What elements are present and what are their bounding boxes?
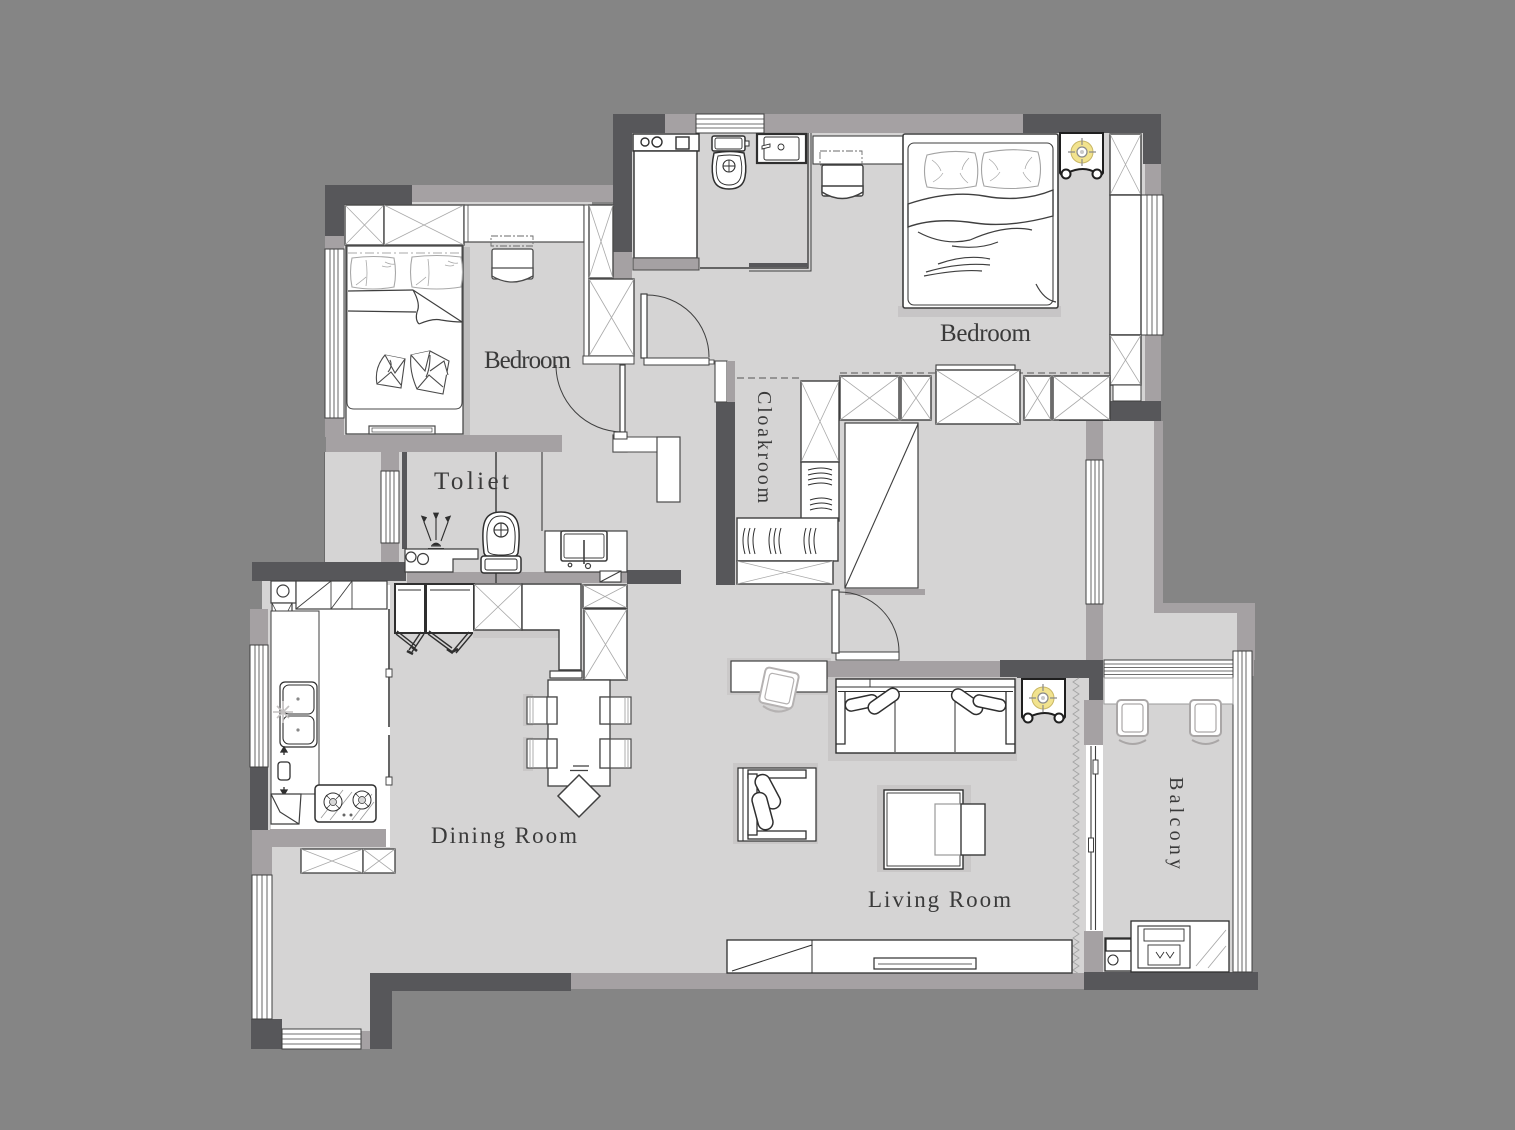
svg-text:Cloakroom: Cloakroom xyxy=(753,391,775,503)
svg-text:Bedroom: Bedroom xyxy=(940,320,1032,347)
svg-text:Bedroom: Bedroom xyxy=(484,347,572,374)
svg-text:Toliet: Toliet xyxy=(434,468,509,495)
svg-text:Dining Room: Dining Room xyxy=(431,823,577,848)
